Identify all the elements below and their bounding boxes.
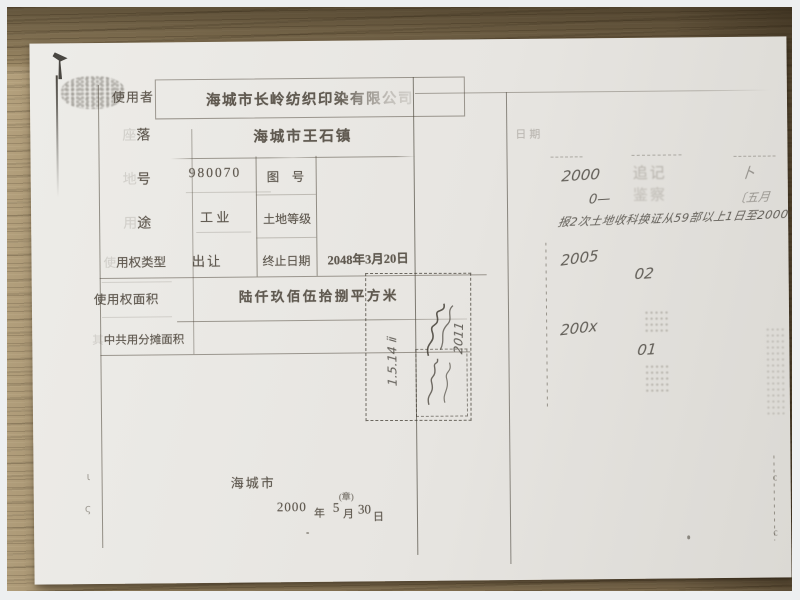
pen-mark-right-b: c <box>773 528 778 538</box>
parcel-no-value: 980070 <box>189 165 242 182</box>
right-type-value: 出让 <box>191 250 222 270</box>
label-location: 座落 <box>122 124 150 144</box>
label-right-type: 使用权类型 <box>103 251 166 271</box>
date-day: 30 <box>358 501 371 517</box>
end-date-value: 2048年3月20日 <box>327 247 409 268</box>
hw-year-2005: 2005 <box>560 247 599 270</box>
hw-zero-dash: 0— <box>588 192 611 208</box>
ink-dot <box>306 532 309 534</box>
table-line-notes-top <box>415 90 771 94</box>
notes-dash-c <box>734 155 776 156</box>
table-line-notes-left <box>506 92 512 564</box>
stamp-box-date-note: 1.5.14 ⅱ <box>384 336 399 387</box>
table-line-row2-under <box>171 156 416 159</box>
photo-frame: 海城市长岭纺织印染有限公司 使用者 座落 地号 用途 使用权类型 使用权面积 其… <box>0 0 800 600</box>
faint-stamp-top: 追记 <box>633 162 667 183</box>
document-paper: 海城市长岭纺织印染有限公司 使用者 座落 地号 用途 使用权类型 使用权面积 其… <box>29 36 791 584</box>
inner-box-scribble <box>422 355 459 409</box>
wooden-desk-background: 海城市长岭纺织印染有限公司 使用者 座落 地号 用途 使用权类型 使用权面积 其… <box>7 7 792 591</box>
date-month-unit: 月 <box>343 506 354 522</box>
table-line-row4-under-a <box>196 232 251 234</box>
location-value: 海城市王石镇 <box>253 125 352 147</box>
table-line-label-box-b <box>102 316 172 318</box>
notes-header: 日期 <box>515 126 543 142</box>
date-year-unit: 年 <box>314 505 325 521</box>
map-no-label: 图 号 <box>267 166 305 185</box>
label-user: 使用者 <box>112 86 154 105</box>
table-line-row3-under-a <box>186 191 271 193</box>
table-line-notes-dotted <box>545 243 548 409</box>
date-year: 2000 <box>277 499 307 515</box>
faint-speckle-a <box>644 310 668 334</box>
hw-note-02: 02 <box>634 264 655 283</box>
photocopy-edge-streak <box>56 75 59 197</box>
date-day-unit: 日 <box>373 508 384 524</box>
end-date-label: 终止日期 <box>262 252 310 269</box>
table-line-cell-right <box>316 156 318 276</box>
hw-note-line: 报2次土地收科换证从59部以上1日至2000年计. <box>557 205 792 230</box>
issuer-city: 海城市 <box>231 472 276 491</box>
pen-mark-left-a: ι <box>87 470 91 483</box>
notes-dash-b <box>632 154 682 155</box>
hw-year-2000: 2000 <box>561 165 601 185</box>
hw-mark-bu: 卜 <box>740 162 756 183</box>
pen-mark-left-b: ς <box>85 502 92 515</box>
table-line-row4-under-b <box>256 237 316 239</box>
faint-speckle-b <box>645 364 669 392</box>
use-value: 工 业 <box>200 207 229 226</box>
table-line-cell-left <box>256 156 258 276</box>
label-parcel-no: 地号 <box>123 168 151 188</box>
ink-speck-bottom <box>687 535 690 539</box>
table-line-row3-under-b <box>256 194 316 196</box>
pen-mark-right-a: c <box>773 473 778 483</box>
label-use: 用途 <box>123 212 151 232</box>
date-seal-note: (章) <box>339 490 354 503</box>
table-line-label-box-a <box>102 281 172 283</box>
land-grade-label: 土地等级 <box>263 210 311 227</box>
hw-year-200x: 200x <box>560 317 598 340</box>
faint-speckle-right <box>765 326 786 414</box>
hw-mark-wuyue: 〔五月 <box>733 188 771 207</box>
label-shared-area: 其中共用分摊面积 <box>92 331 184 348</box>
faint-stamp-bottom: 鉴察 <box>633 184 667 205</box>
label-use-right-area: 使用权面积 <box>94 288 159 308</box>
hw-note-01: 01 <box>636 340 657 359</box>
user-name-cell: 海城市长岭纺织印染有限公司 <box>155 76 465 119</box>
user-name-value: 海城市长岭纺织印染有限公司 <box>206 86 414 109</box>
notes-dash-a <box>551 156 583 157</box>
